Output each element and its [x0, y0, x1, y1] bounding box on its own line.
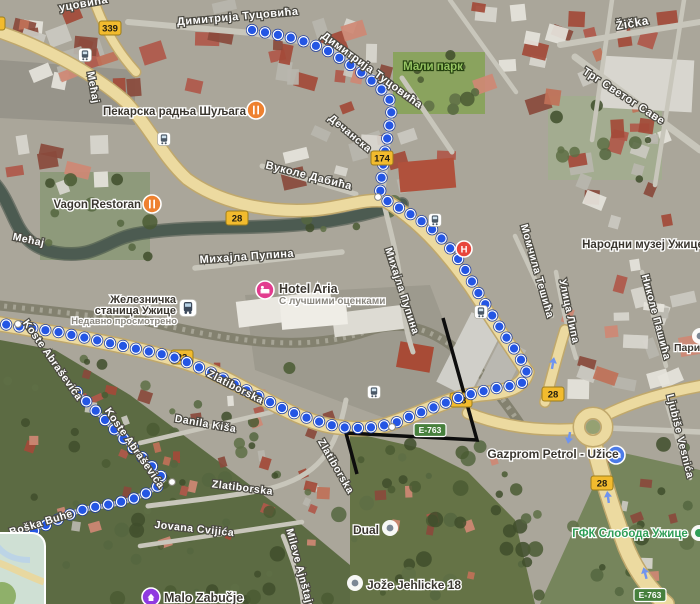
tree — [187, 548, 194, 555]
tree — [521, 513, 532, 524]
tree — [111, 174, 123, 186]
tree — [84, 359, 90, 365]
tree — [503, 524, 516, 537]
tree — [45, 178, 55, 188]
building-large — [398, 158, 456, 193]
road-shield-28: 28 — [591, 476, 613, 490]
transit-stop-icon[interactable] — [158, 133, 171, 146]
tree — [454, 517, 466, 529]
tree — [320, 226, 326, 232]
poi-label[interactable]: Malo Zabučje — [164, 591, 243, 604]
tree — [597, 138, 610, 151]
tree — [254, 571, 261, 578]
svg-text:28: 28 — [548, 390, 559, 401]
tree — [456, 446, 469, 459]
tree — [453, 480, 469, 496]
svg-text:28: 28 — [232, 214, 243, 225]
road-shield-E-763: E-763 — [634, 589, 666, 602]
tree — [388, 486, 396, 494]
tree — [102, 459, 111, 468]
tree — [426, 473, 432, 479]
tree — [249, 442, 256, 449]
tree — [266, 571, 272, 577]
waypoint-dot — [375, 194, 382, 201]
tree — [140, 380, 150, 390]
svg-text:E-763: E-763 — [639, 590, 662, 600]
tree — [398, 453, 406, 461]
tree — [102, 392, 109, 399]
building — [71, 521, 81, 532]
tree — [645, 137, 651, 143]
building — [568, 11, 585, 27]
building — [29, 436, 38, 445]
building — [287, 69, 299, 85]
poi-label[interactable]: Hotel Aria — [279, 282, 339, 296]
building — [614, 312, 630, 321]
satellite-map[interactable]: 2328339174282828E-763E-763НДимитрија Туц… — [0, 0, 700, 604]
building — [467, 571, 475, 579]
tree — [235, 446, 247, 458]
tree — [491, 505, 501, 515]
tree — [143, 252, 153, 262]
tree — [445, 50, 455, 60]
tree — [114, 523, 129, 538]
poi-label[interactable]: Народни музеј Ужице — [582, 239, 700, 251]
poi-marker-restaurant[interactable] — [143, 195, 161, 213]
tree — [179, 479, 186, 486]
tree — [131, 554, 142, 565]
poi-marker-dot-gray[interactable] — [382, 520, 398, 536]
building — [307, 539, 316, 545]
building — [510, 4, 527, 22]
sports-club-label[interactable]: ГФК Слобода Ужице — [572, 528, 688, 540]
tree — [474, 440, 487, 453]
transit-stop-icon[interactable] — [79, 49, 92, 62]
tree — [3, 377, 12, 386]
tree — [385, 445, 395, 455]
tree — [599, 564, 606, 571]
poi-marker-train-station[interactable] — [180, 300, 197, 317]
tree — [533, 510, 542, 519]
tree — [283, 362, 295, 374]
svg-text:Н: Н — [461, 244, 468, 255]
tree — [117, 220, 124, 227]
tree — [129, 523, 144, 538]
svg-text:174: 174 — [374, 154, 391, 165]
map-canvas[interactable]: 2328339174282828E-763E-763НДимитрија Туц… — [0, 0, 700, 604]
building — [94, 171, 109, 187]
tree — [496, 491, 503, 498]
road-shield-174: 174 — [371, 151, 393, 165]
tree — [449, 93, 461, 105]
building — [629, 259, 640, 272]
transit-stop-icon[interactable] — [368, 386, 381, 399]
tree — [272, 472, 279, 479]
poi-marker-restaurant[interactable] — [247, 101, 265, 119]
tree — [502, 471, 508, 477]
poi-marker-hotel[interactable] — [256, 281, 274, 299]
tree — [656, 437, 671, 452]
road-shield-28: 28 — [542, 387, 564, 401]
tree — [409, 481, 421, 493]
tree — [305, 489, 312, 496]
tree — [399, 475, 408, 484]
building — [227, 396, 234, 407]
building — [567, 379, 589, 399]
building — [544, 88, 561, 106]
building — [317, 487, 330, 500]
tree — [45, 239, 52, 246]
poi-label[interactable]: Dual — [353, 523, 379, 537]
building — [610, 119, 624, 138]
tree — [353, 223, 361, 231]
poi-marker-dot-gray[interactable] — [347, 575, 363, 591]
tree — [31, 493, 38, 500]
tree — [69, 441, 81, 453]
tree — [528, 541, 544, 557]
svg-text:339: 339 — [102, 24, 118, 35]
tree — [599, 148, 611, 160]
tree — [534, 590, 545, 601]
poi-label[interactable]: Пекарска радња Шуљага — [103, 106, 247, 118]
tree — [359, 496, 374, 511]
tree — [404, 438, 416, 450]
road-shield-partial — [0, 17, 5, 30]
tree — [522, 557, 532, 567]
tree — [169, 408, 175, 414]
tree — [556, 149, 569, 162]
poi-label[interactable]: Парикм — [674, 342, 700, 354]
tree — [569, 147, 580, 158]
building — [661, 214, 673, 227]
tree — [358, 456, 365, 463]
tree — [246, 590, 261, 604]
transit-stop-icon[interactable] — [429, 214, 442, 227]
tree — [416, 551, 432, 567]
tree — [103, 540, 112, 549]
tree — [591, 569, 604, 582]
tree — [683, 501, 693, 511]
tree — [142, 214, 157, 229]
tree — [657, 487, 665, 495]
tree — [147, 423, 160, 436]
transit-stop-icon[interactable] — [475, 306, 488, 319]
svg-text:E-763: E-763 — [419, 425, 442, 435]
building — [640, 479, 653, 488]
waypoint-dot — [389, 424, 396, 431]
tree — [128, 243, 136, 251]
tree — [64, 173, 77, 186]
poi-label[interactable]: С лучшими оценками — [279, 296, 385, 307]
tree — [21, 418, 30, 427]
tree — [270, 546, 285, 561]
poi-marker-place-purple[interactable] — [142, 588, 160, 604]
map-inset[interactable] — [0, 534, 44, 604]
tree — [550, 111, 563, 124]
poi-label[interactable]: Vagon Restoran — [53, 199, 141, 211]
building — [623, 334, 648, 348]
road-shield-28: 28 — [226, 211, 248, 225]
tree — [249, 432, 258, 441]
building — [656, 10, 678, 25]
tree — [331, 507, 346, 522]
tree — [194, 400, 203, 409]
poi-marker-hospital[interactable]: Н — [456, 241, 472, 257]
tree — [71, 428, 79, 436]
tree — [97, 359, 108, 370]
roundabout — [579, 413, 607, 441]
tree — [32, 384, 39, 391]
svg-text:28: 28 — [597, 479, 608, 490]
building — [604, 325, 618, 338]
tree — [615, 587, 624, 596]
road-shield-339: 339 — [99, 21, 121, 35]
tree — [460, 92, 475, 107]
waypoint-dot — [169, 479, 176, 486]
tree — [62, 561, 70, 569]
building — [524, 31, 541, 47]
tree — [263, 506, 275, 518]
tree — [629, 136, 642, 149]
tree — [263, 583, 276, 596]
tree — [500, 542, 514, 556]
poi-label[interactable]: Gazprom Petrol - Užice — [487, 447, 619, 461]
building — [375, 490, 387, 500]
tree — [636, 175, 644, 183]
poi-label[interactable]: Jože Jehlicke 18 — [367, 578, 461, 592]
building — [90, 135, 109, 154]
tree — [417, 76, 424, 83]
tree — [428, 512, 443, 527]
tree — [510, 483, 522, 495]
road-shield-E-763: E-763 — [414, 424, 446, 437]
tree — [170, 460, 178, 468]
building — [126, 78, 141, 97]
poi-label[interactable]: Недавно просмотрено — [71, 316, 177, 327]
park-label: Мали парк — [403, 61, 463, 73]
